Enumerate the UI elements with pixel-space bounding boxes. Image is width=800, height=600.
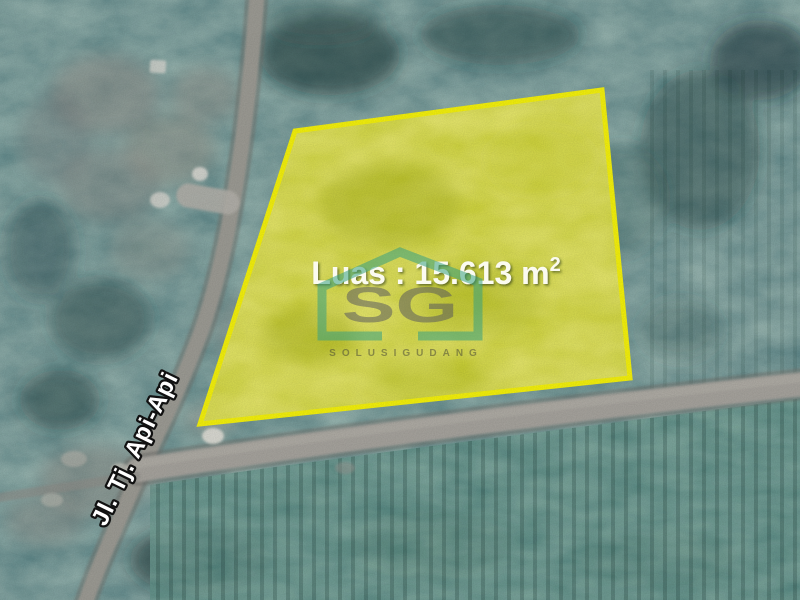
watermark-monogram-text: SG (342, 278, 458, 334)
satellite-map: Luas : 15.613 m2 SG SOLUSIGUDANG Jl. Tj.… (0, 0, 800, 600)
watermark-subtext: SOLUSIGUDANG (329, 348, 483, 359)
area-label-superscript: 2 (550, 254, 561, 276)
watermark-monogram: SG (342, 278, 458, 334)
map-canvas: Luas : 15.613 m2 SG SOLUSIGUDANG Jl. Tj.… (0, 0, 800, 600)
